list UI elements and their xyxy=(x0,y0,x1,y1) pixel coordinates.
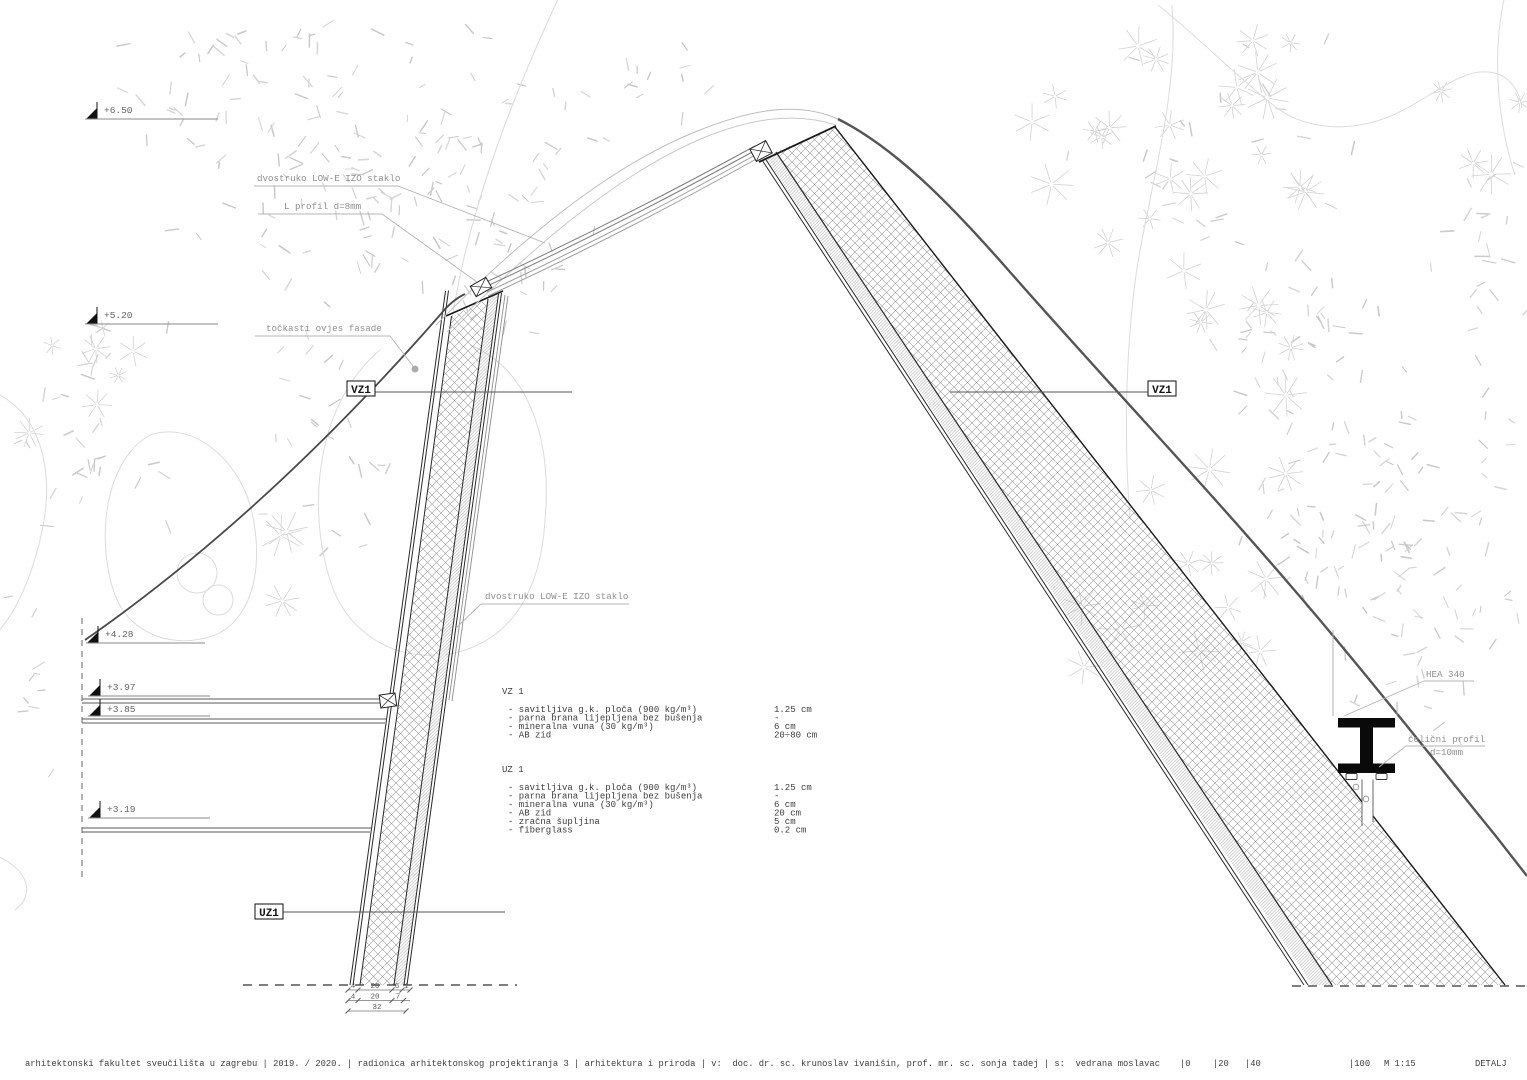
elevation-marker-397: +3.97 xyxy=(88,679,210,696)
glass-clamp-slab xyxy=(379,693,397,708)
elevation-label: +6.50 xyxy=(104,105,133,116)
callout-label: d=10mm xyxy=(1430,747,1464,758)
tag-uz1-label: UZ1 xyxy=(259,908,279,920)
ground-cut-lines xyxy=(243,985,1527,986)
dim-label: 1 xyxy=(404,983,409,991)
elevation-marker-385: +3.85 xyxy=(88,699,210,716)
callout-l-profil: L profil d=8mm xyxy=(258,201,477,282)
dim-label: 32 xyxy=(372,1004,381,1012)
glass-clamp-wall-top xyxy=(470,277,492,296)
clip-right xyxy=(1376,774,1387,780)
dimension-chains: 4 20 6 1 4 20 7 32 xyxy=(346,983,413,1014)
callout-label: HEA 340 xyxy=(1426,669,1465,680)
callout-label: čelični profil xyxy=(1408,734,1485,745)
callout-celicni: čelični profil d=10mm xyxy=(1379,734,1485,767)
footer-scale-tick-100: |100 xyxy=(1349,1059,1370,1069)
elevation-marker-319: +3.19 xyxy=(88,801,210,818)
legend-item-name: - AB zid xyxy=(508,731,551,741)
point-fixing-dot xyxy=(412,366,419,373)
footer-scale-tick-40: |40 xyxy=(1245,1059,1261,1069)
dim-label: 20 xyxy=(370,994,380,1002)
legend-item-value: 1.25 cm xyxy=(774,705,812,715)
elevation-label: +4.28 xyxy=(105,629,134,640)
footer-scale: M 1:15 xyxy=(1384,1059,1416,1069)
elevation-label: +3.85 xyxy=(107,704,136,715)
dim-label: 20 xyxy=(370,983,380,991)
callout-glass-mid: dvostruko LOW-E IZO staklo xyxy=(456,591,629,628)
footer: arhitektonski fakultet sveučilišta u zag… xyxy=(25,1059,1507,1069)
hea-bottom-flange xyxy=(1338,764,1395,774)
legend-item-value: 20÷80 cm xyxy=(774,731,817,741)
callout-hea: HEA 340 xyxy=(1344,669,1474,716)
tag-vz1-right-label: VZ1 xyxy=(1152,385,1172,397)
right-wall xyxy=(759,126,1505,985)
tag-vz1-left-label: VZ1 xyxy=(351,385,371,397)
clip-left xyxy=(1346,774,1357,780)
legend-vz1-title: VZ 1 xyxy=(502,687,524,697)
elevation-label: +3.19 xyxy=(107,804,136,815)
dim-label: 4 xyxy=(351,994,356,1002)
dim-label: 6 xyxy=(395,983,400,991)
dim-label: 4 xyxy=(351,983,356,991)
architectural-detail-sheet: VZ1 VZ1 UZ1 +6.50 +5.20 +4.28 +3.97 xyxy=(0,0,1527,1080)
legend-uz1-title: UZ 1 xyxy=(502,765,524,775)
right-wall-concrete-hatch xyxy=(776,127,1505,985)
right-wall-mineral-wool-hatch xyxy=(766,152,1332,985)
footer-sheet-title: DETALJ xyxy=(1475,1059,1507,1069)
elevation-marker-520: +5.20 xyxy=(85,307,218,324)
footer-scale-tick-20: |20 xyxy=(1213,1059,1229,1069)
legend-item-value: 1.25 cm xyxy=(774,783,812,793)
legend-item-name: - fiberglass xyxy=(508,826,573,836)
callout-label: dvostruko LOW-E IZO staklo xyxy=(485,591,628,602)
callout-label: L profil d=8mm xyxy=(284,201,362,212)
footer-info: arhitektonski fakultet sveučilišta u zag… xyxy=(25,1059,1160,1069)
elevation-label: +5.20 xyxy=(104,310,133,321)
vegetation-decor xyxy=(4,21,1527,777)
elevation-marker-650: +6.50 xyxy=(85,102,218,119)
detail-drawing-canvas: VZ1 VZ1 UZ1 +6.50 +5.20 +4.28 +3.97 xyxy=(0,0,1527,1080)
callout-label: dvostruko LOW-E IZO staklo xyxy=(257,173,400,184)
callout-label: točkasti ovjes fasade xyxy=(266,323,382,334)
hea-web xyxy=(1360,728,1373,764)
dim-label: 7 xyxy=(396,994,401,1002)
hea-top-flange xyxy=(1338,718,1395,728)
elevation-label: +3.97 xyxy=(107,682,136,693)
legend-item-value: 0.2 cm xyxy=(774,826,806,836)
footer-scale-tick-0: |0 xyxy=(1180,1059,1191,1069)
legend-uz1: UZ 1 - savitljiva g.k. ploča (900 kg/m³)… xyxy=(502,765,812,836)
legend-vz1: VZ 1 - savitljiva g.k. ploča (900 kg/m³)… xyxy=(502,687,817,741)
